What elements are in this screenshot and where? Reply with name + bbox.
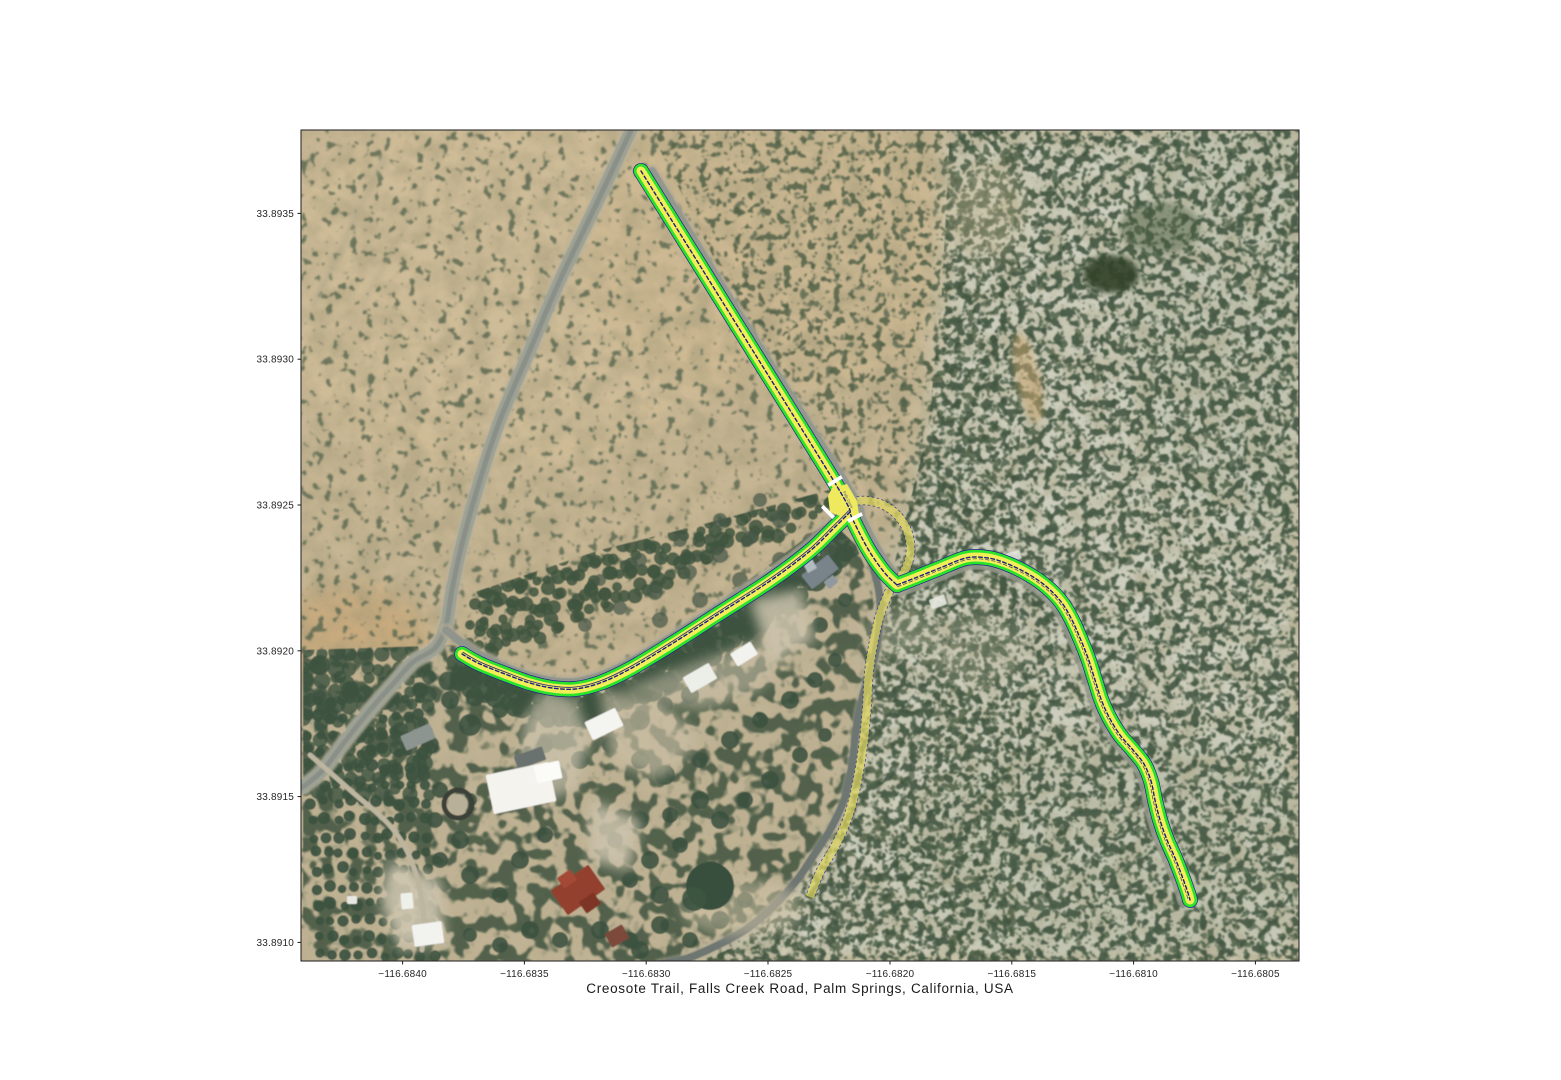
- svg-text:33.8925: 33.8925: [256, 501, 294, 512]
- svg-text:−116.6805: −116.6805: [1231, 969, 1280, 980]
- svg-text:33.8910: 33.8910: [256, 938, 294, 949]
- svg-text:33.8915: 33.8915: [256, 792, 294, 803]
- svg-text:−116.6810: −116.6810: [1109, 969, 1158, 980]
- svg-text:33.8930: 33.8930: [256, 355, 294, 366]
- svg-text:33.8920: 33.8920: [256, 646, 294, 657]
- svg-text:−116.6820: −116.6820: [866, 969, 915, 980]
- svg-text:−116.6835: −116.6835: [500, 969, 549, 980]
- svg-text:−116.6825: −116.6825: [744, 969, 793, 980]
- svg-text:−116.6840: −116.6840: [378, 969, 427, 980]
- svg-text:−116.6815: −116.6815: [987, 969, 1036, 980]
- svg-text:−116.6830: −116.6830: [622, 969, 671, 980]
- svg-text:33.8935: 33.8935: [256, 209, 294, 220]
- svg-text:Creosote Trail, Falls Creek Ro: Creosote Trail, Falls Creek Road, Palm S…: [586, 981, 1014, 996]
